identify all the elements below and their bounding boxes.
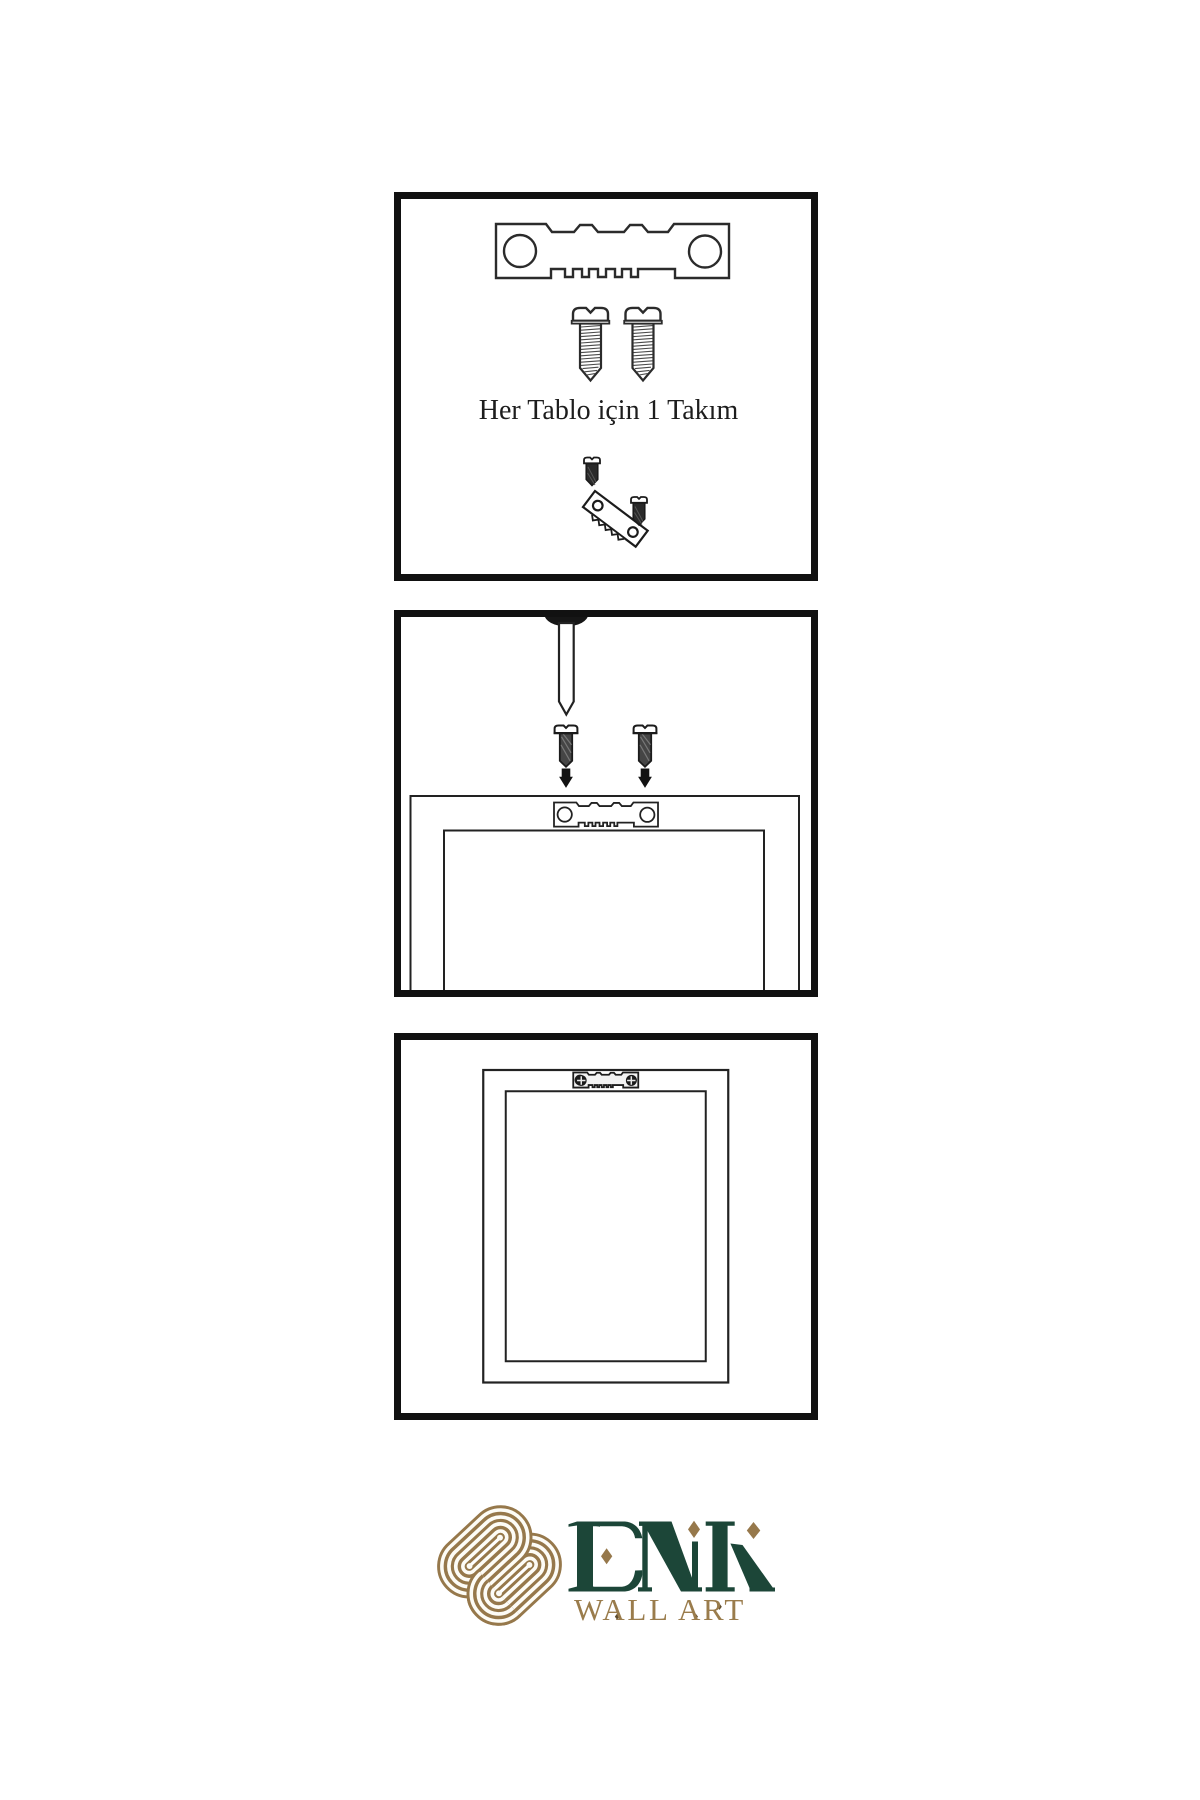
svg-text:WALL ART: WALL ART (574, 1592, 746, 1627)
svg-text:Her Tablo için 1 Takım: Her Tablo için 1 Takım (479, 395, 739, 426)
